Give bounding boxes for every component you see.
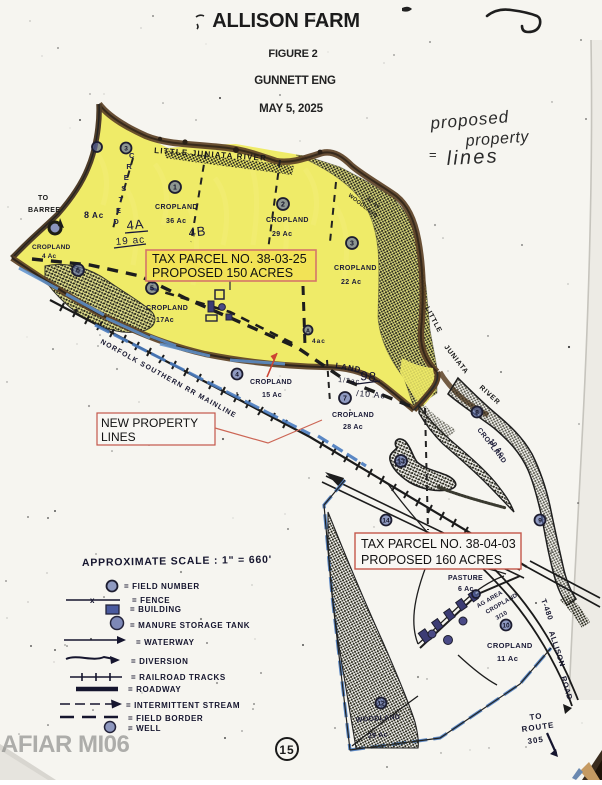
svg-text:x: x (90, 596, 95, 605)
svg-text:CROPLAND: CROPLAND (334, 265, 377, 272)
svg-text:9: 9 (538, 518, 542, 525)
svg-text:3: 3 (124, 146, 128, 153)
svg-text:CROPLAND: CROPLAND (32, 244, 71, 251)
svg-text:BARREE: BARREE (28, 207, 61, 214)
svg-text:= RAILROAD TRACKS: = RAILROAD TRACKS (131, 673, 226, 682)
svg-text:= DIVERSION: = DIVERSION (131, 657, 189, 666)
svg-text:= WELL: = WELL (128, 724, 161, 733)
svg-text:4B: 4B (188, 223, 207, 240)
svg-text:= BUILDING: = BUILDING (130, 605, 182, 614)
svg-text:28 Ac: 28 Ac (343, 424, 363, 431)
svg-text:TAX PARCEL NO. 38-04-03: TAX PARCEL NO. 38-04-03 (361, 537, 516, 551)
svg-text:3: 3 (350, 241, 354, 248)
svg-text:4 Ac: 4 Ac (42, 253, 56, 260)
svg-text:6: 6 (76, 268, 80, 275)
svg-text:4: 4 (235, 372, 239, 379)
svg-text:CROPLAND: CROPLAND (155, 204, 198, 211)
svg-text:E: E (116, 206, 121, 215)
svg-text:=: = (429, 147, 438, 162)
svg-text:CROPLAND: CROPLAND (250, 379, 292, 386)
svg-text:E: E (124, 173, 129, 182)
svg-text:6 Ac: 6 Ac (458, 586, 474, 593)
svg-text:= MANURE STORAGE TANK: = MANURE STORAGE TANK (130, 621, 250, 630)
svg-text:12: 12 (377, 701, 385, 708)
svg-text:2: 2 (281, 202, 285, 209)
svg-text:7: 7 (343, 396, 347, 403)
svg-text:AFIAR MI06: AFIAR MI06 (1, 731, 130, 758)
svg-text:CROPLAND: CROPLAND (146, 305, 188, 312)
svg-text:29 Ac: 29 Ac (368, 732, 388, 740)
svg-text:Ac: Ac (92, 211, 104, 220)
svg-text:15: 15 (279, 743, 294, 757)
svg-text:TAX PARCEL NO. 38-03-25: TAX PARCEL NO. 38-03-25 (152, 252, 307, 266)
svg-text:14: 14 (382, 518, 390, 525)
svg-text:5: 5 (150, 286, 154, 293)
svg-text:8: 8 (84, 210, 90, 220)
svg-text:17Ac: 17Ac (156, 317, 174, 324)
svg-text:ALLISON FARM: ALLISON FARM (212, 10, 360, 32)
svg-text:CROPLAND: CROPLAND (487, 641, 533, 650)
svg-text:15 Ac: 15 Ac (262, 392, 282, 399)
svg-text:T: T (119, 195, 124, 204)
svg-text:PROPOSED 150 ACRES: PROPOSED 150 ACRES (152, 266, 293, 280)
svg-text:NEW PROPERTY: NEW PROPERTY (101, 416, 198, 430)
svg-text:A: A (306, 329, 310, 335)
svg-text:4A: 4A (126, 216, 145, 233)
svg-text:S: S (121, 184, 126, 193)
svg-text:FIGURE 2: FIGURE 2 (268, 48, 317, 60)
svg-text:1: 1 (173, 185, 177, 192)
svg-text:= INTERMITTENT STREAM: = INTERMITTENT STREAM (126, 701, 240, 710)
svg-text:PASTURE: PASTURE (448, 575, 483, 582)
svg-text:= ROADWAY: = ROADWAY (128, 685, 181, 694)
svg-text:= FIELD NUMBER: = FIELD NUMBER (124, 582, 200, 591)
svg-text:TO: TO (38, 195, 49, 202)
svg-text:= FIELD BORDER: = FIELD BORDER (128, 714, 203, 723)
svg-text:TO: TO (529, 711, 543, 722)
svg-text:= WATERWAY: = WATERWAY (136, 638, 195, 647)
svg-text:10: 10 (502, 623, 510, 630)
svg-text:D: D (113, 217, 119, 226)
svg-text:R: R (126, 162, 132, 171)
svg-text:11 Ac: 11 Ac (497, 654, 518, 663)
svg-text:CROPLAND: CROPLAND (266, 217, 309, 224)
svg-text:36 Ac: 36 Ac (166, 218, 186, 225)
svg-text:lines: lines (446, 145, 499, 170)
svg-text:29 Ac: 29 Ac (272, 231, 292, 238)
svg-text:CROPLAND: CROPLAND (332, 412, 374, 419)
svg-text:4ac: 4ac (312, 338, 326, 345)
svg-text:PROPOSED 160 ACRES: PROPOSED 160 ACRES (361, 553, 502, 567)
svg-text:8: 8 (475, 410, 479, 417)
svg-text:22 Ac: 22 Ac (341, 279, 361, 286)
svg-text:GUNNETT ENG: GUNNETT ENG (254, 75, 336, 87)
svg-text:13: 13 (397, 459, 405, 466)
svg-text:MAY 5, 2025: MAY 5, 2025 (259, 103, 323, 115)
svg-text:LINES: LINES (101, 430, 136, 444)
svg-text:= FENCE: = FENCE (132, 596, 170, 605)
